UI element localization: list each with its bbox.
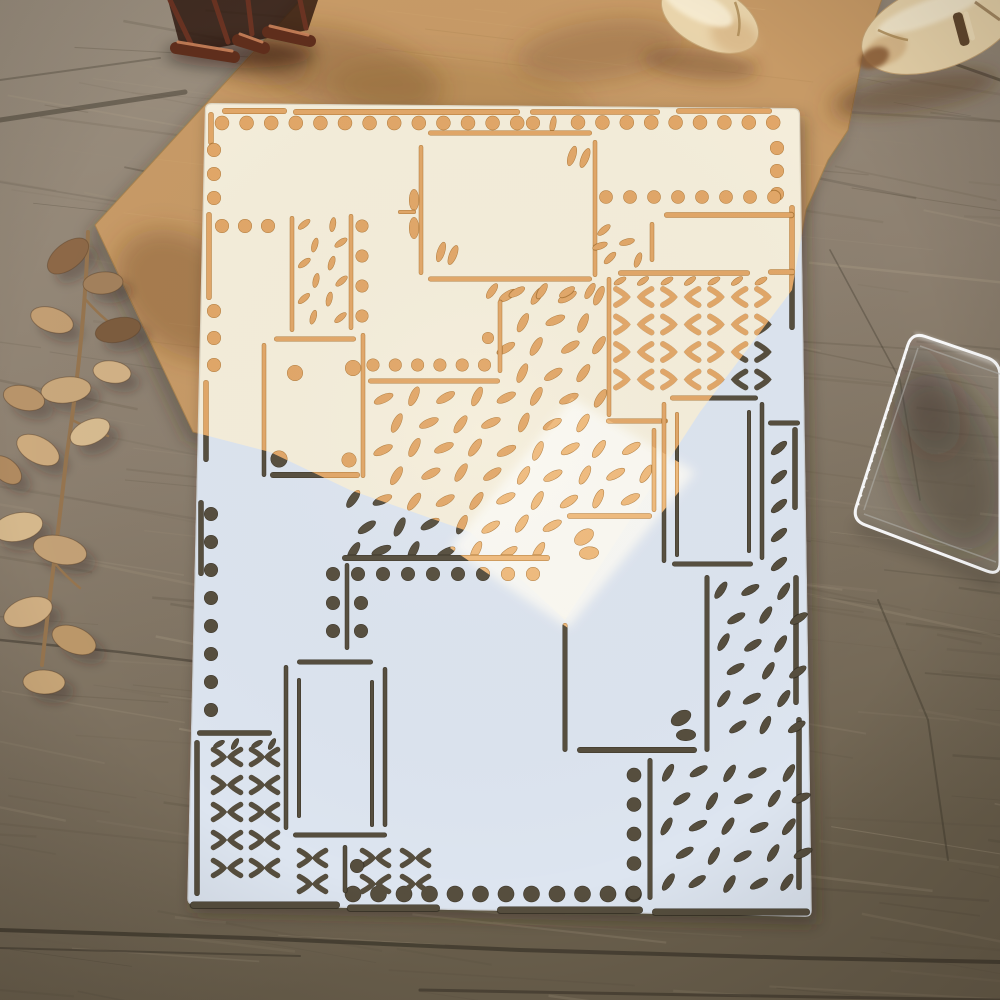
product-photo xyxy=(0,0,1000,1000)
photo-vignette xyxy=(0,0,1000,1000)
stencil-scene xyxy=(0,0,1000,1000)
